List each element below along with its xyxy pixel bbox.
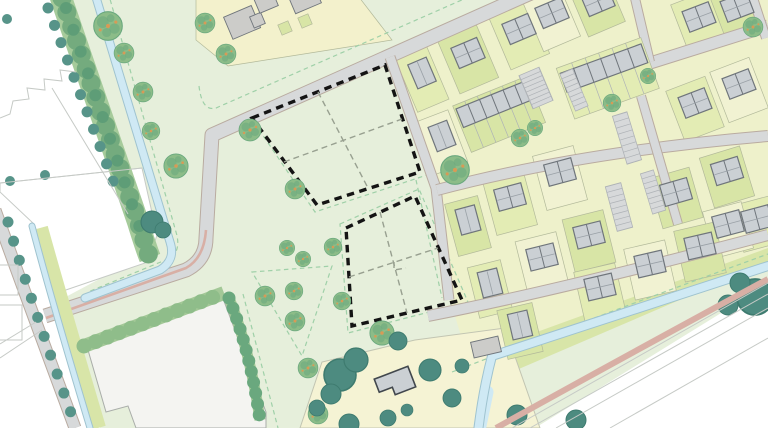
park-tree <box>142 122 160 140</box>
park-tree <box>333 292 351 310</box>
park-tree <box>255 286 275 306</box>
street-tree-blob <box>603 94 621 112</box>
tree <box>344 348 368 372</box>
street-tree-blob <box>441 156 470 185</box>
park-tree <box>239 119 261 141</box>
tree <box>455 359 469 373</box>
park-tree <box>216 44 236 64</box>
park-tree <box>298 358 318 378</box>
tree <box>401 404 413 416</box>
tree <box>309 400 325 416</box>
park-tree <box>279 240 294 255</box>
site-plan-canvas <box>0 0 768 428</box>
site-plan-map <box>0 0 768 428</box>
park-tree <box>114 43 134 63</box>
park-tree <box>133 82 153 102</box>
park-tree <box>285 311 305 331</box>
park-tree <box>285 282 303 300</box>
tree <box>321 384 341 404</box>
tree <box>380 410 396 426</box>
tree <box>389 332 407 350</box>
tree <box>155 222 171 238</box>
park-tree <box>324 238 342 256</box>
tree <box>443 389 461 407</box>
street-tree-blob <box>527 120 542 135</box>
park-tree <box>195 13 215 33</box>
street-tree-blob <box>743 17 763 37</box>
park-tree <box>295 251 310 266</box>
park-tree <box>285 179 305 199</box>
park-tree <box>164 154 188 178</box>
tree <box>419 359 441 381</box>
park-tree <box>94 12 123 41</box>
street-tree-blob <box>640 68 655 83</box>
street-tree-blob <box>511 129 529 147</box>
